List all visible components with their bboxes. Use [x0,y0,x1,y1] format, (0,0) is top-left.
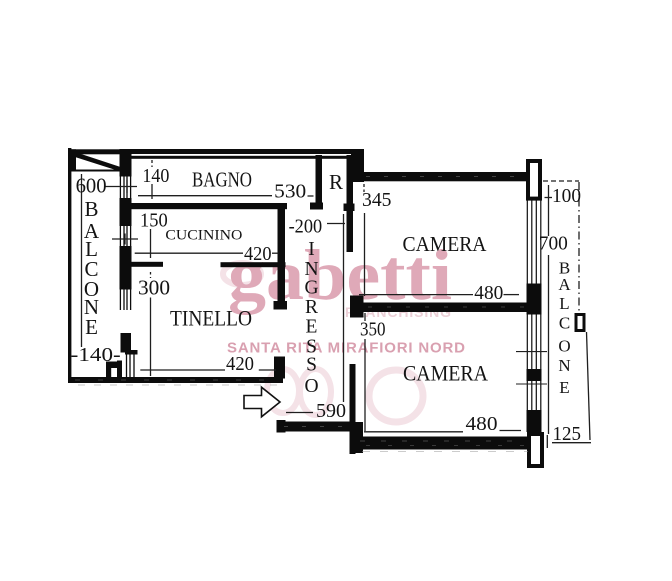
svg-text:E: E [559,378,569,397]
svg-text:O: O [558,337,570,356]
svg-text:S: S [306,355,317,376]
svg-text:590: 590 [316,400,346,422]
svg-text:480: 480 [466,413,498,435]
svg-text:-140-: -140- [71,344,121,366]
svg-text:350: 350 [360,319,386,341]
svg-text:700: 700 [539,233,568,255]
svg-text:600: 600 [76,174,107,198]
svg-text:C: C [559,314,570,333]
svg-text:G: G [304,278,318,299]
svg-text:100: 100 [552,185,581,207]
svg-text:420: 420 [226,353,254,375]
svg-text:L: L [559,294,569,313]
svg-text:140: 140 [142,165,169,187]
svg-text:TINELLO: TINELLO [170,306,252,331]
svg-text:A: A [558,275,571,294]
svg-text:R: R [329,170,343,194]
svg-text:345: 345 [362,189,392,211]
svg-text:SANTA RITA MIRAFIORI NORD: SANTA RITA MIRAFIORI NORD [227,340,465,357]
svg-text:E: E [85,315,98,339]
svg-text:480: 480 [474,282,503,304]
svg-text:125: 125 [553,423,582,445]
svg-text:420: 420 [244,243,272,265]
svg-text:N: N [558,356,570,375]
svg-text:R: R [305,297,318,318]
svg-text:E: E [306,317,318,338]
svg-text:O: O [304,376,318,397]
svg-text:530: 530 [274,181,306,203]
svg-text:150: 150 [140,210,168,232]
svg-text:300: 300 [138,276,170,300]
svg-text:I: I [308,239,315,260]
svg-text:CUCININO: CUCININO [165,228,242,244]
svg-text:CAMERA: CAMERA [403,232,488,256]
svg-text:BAGNO: BAGNO [192,168,252,192]
svg-text:B: B [84,197,98,221]
svg-text:-200: -200 [289,216,323,238]
svg-text:CAMERA: CAMERA [403,361,488,386]
